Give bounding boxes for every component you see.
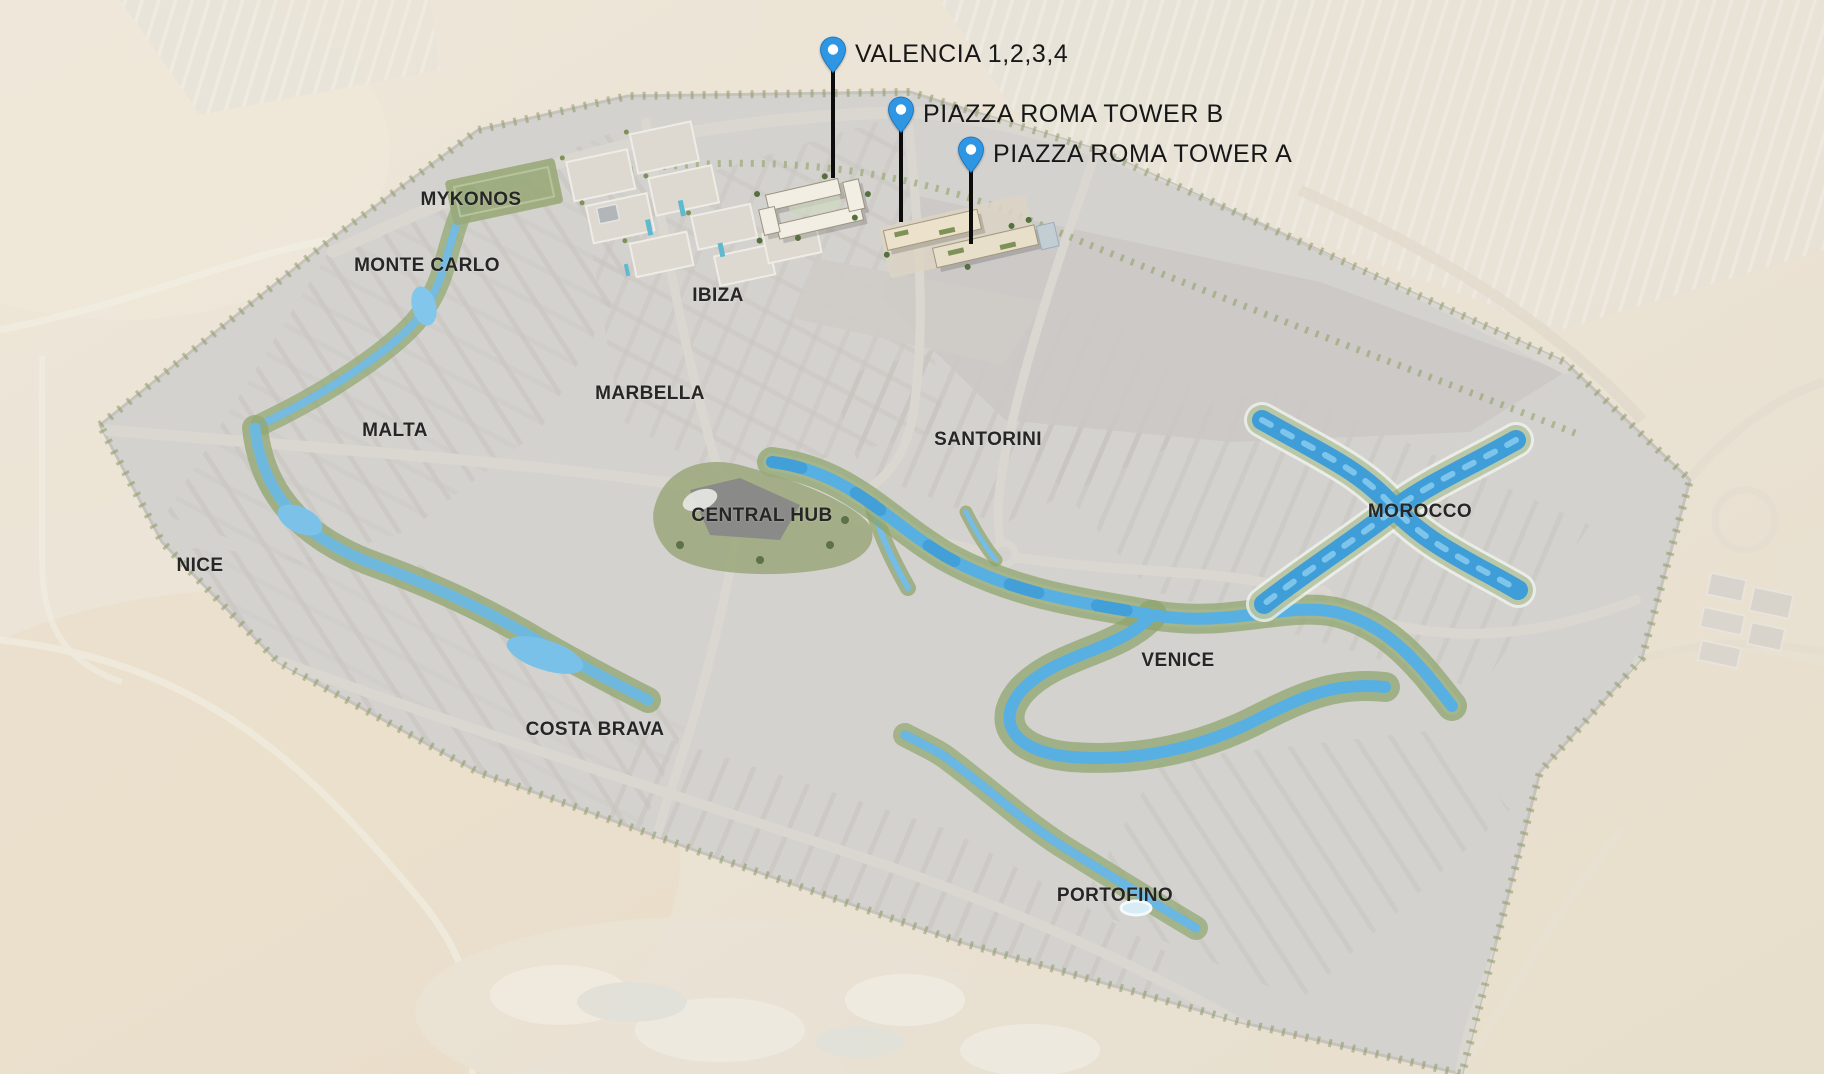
map-pin-icon (819, 36, 847, 74)
pin-label-piazza-roma-tower-a: PIAZZA ROMA TOWER A (993, 140, 1292, 169)
masterplan-screenshot: MYKONOS MONTE CARLO IBIZA MARBELLA MALTA… (0, 0, 1824, 1074)
district-label-venice: VENICE (1141, 650, 1214, 672)
district-label-nice: NICE (177, 555, 224, 577)
district-label-costa-brava: COSTA BRAVA (526, 719, 665, 741)
pin-leader-line (831, 70, 835, 178)
district-label-portofino: PORTOFINO (1057, 885, 1173, 907)
district-label-morocco: MOROCCO (1368, 501, 1472, 523)
district-label-monte-carlo: MONTE CARLO (354, 255, 500, 277)
pin-label-piazza-roma-tower-b: PIAZZA ROMA TOWER B (923, 100, 1224, 129)
map-pin-icon (957, 136, 985, 174)
map-pin-icon (887, 96, 915, 134)
district-label-malta: MALTA (362, 420, 428, 442)
office-building (597, 204, 620, 224)
district-label-ibiza: IBIZA (692, 285, 744, 307)
district-label-santorini: SANTORINI (934, 429, 1042, 451)
district-label-marbella: MARBELLA (595, 383, 705, 405)
pin-label-valencia: VALENCIA 1,2,3,4 (855, 40, 1068, 69)
district-label-mykonos: MYKONOS (421, 189, 522, 211)
pin-leader-line (969, 170, 973, 244)
pin-leader-line (899, 130, 903, 222)
district-label-central-hub: CENTRAL HUB (691, 505, 832, 527)
masterplan-canvas (0, 0, 1824, 1074)
